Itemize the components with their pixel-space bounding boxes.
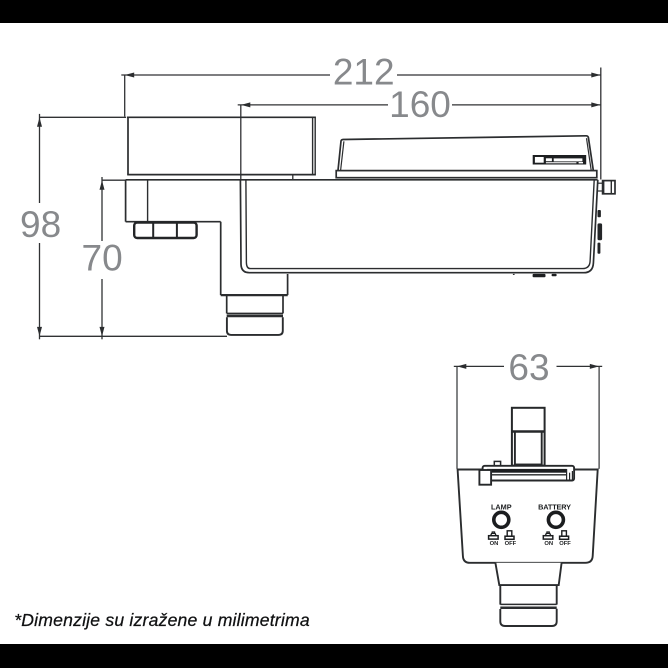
svg-text:LAMP: LAMP bbox=[491, 502, 512, 511]
svg-text:ON: ON bbox=[544, 541, 553, 547]
svg-text:98: 98 bbox=[20, 204, 61, 245]
svg-text:63: 63 bbox=[508, 347, 549, 388]
svg-text:BATTERY: BATTERY bbox=[538, 502, 571, 511]
svg-text:212: 212 bbox=[333, 52, 395, 93]
svg-text:70: 70 bbox=[82, 238, 123, 279]
svg-text:OFF: OFF bbox=[559, 541, 571, 547]
svg-text:160: 160 bbox=[389, 84, 451, 125]
svg-text:*Dimenzije su izražene u milim: *Dimenzije su izražene u milimetrima bbox=[14, 610, 310, 630]
svg-text:ON: ON bbox=[490, 541, 499, 547]
svg-text:OFF: OFF bbox=[505, 541, 517, 547]
